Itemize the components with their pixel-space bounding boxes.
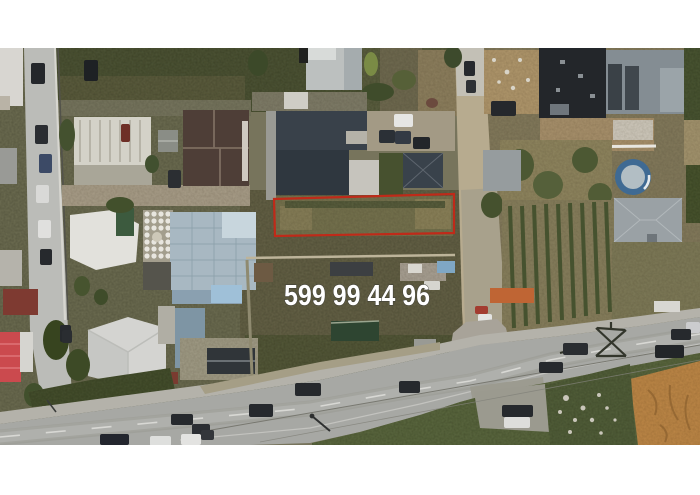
- svg-text:599 99 44 96: 599 99 44 96: [284, 280, 430, 312]
